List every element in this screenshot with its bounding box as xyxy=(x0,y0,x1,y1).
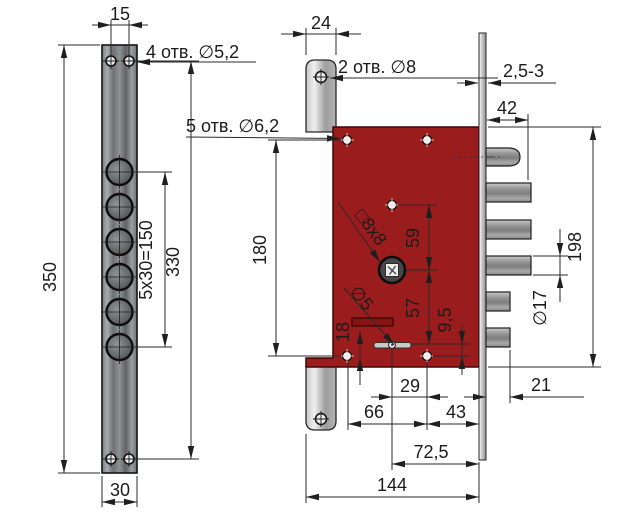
faceplate-strip-view xyxy=(102,45,137,473)
spindle-square-hole xyxy=(379,257,405,283)
dim-backset: 72,5 xyxy=(413,442,448,462)
dim-lever-to-hole: 9,5 xyxy=(435,307,455,332)
dim-hole-to-faceplate: 43 xyxy=(446,402,466,422)
dim-hole-to-spindle: 59 xyxy=(403,228,423,248)
dim-slot-offset: 18 xyxy=(333,322,353,342)
body-slot xyxy=(352,318,393,326)
label-4-holes: 4 отв. ∅5,2 xyxy=(146,42,239,62)
dim-body-hole-span: 180 xyxy=(250,235,270,265)
dim-strip-hole-span: 330 xyxy=(163,247,183,277)
dimensions-left-view xyxy=(58,20,256,507)
dim-bolt-throw: 42 xyxy=(497,98,517,118)
dim-lever-pivot-offset: 29 xyxy=(400,376,420,396)
deadbolts xyxy=(486,183,531,275)
dim-spindle-to-lever: 57 xyxy=(403,298,423,318)
label-plate-thickness: 2,5-3 xyxy=(503,61,544,81)
label-5-holes: 5 отв. ∅6,2 xyxy=(186,116,279,136)
drawing-canvas: 15 4 отв. ∅5,2 350 5x30=150 330 30 24 2 … xyxy=(0,0,635,517)
dim-body-depth: 144 xyxy=(377,475,407,495)
aux-bolts xyxy=(486,292,510,347)
label-2-holes: 2 отв. ∅8 xyxy=(338,57,416,77)
faceplate-edge xyxy=(479,33,486,460)
dim-big-hole-pattern: 5x30=150 xyxy=(136,220,156,300)
dim-strip-height: 350 xyxy=(40,262,60,292)
dim-strip-width: 30 xyxy=(110,480,130,500)
dim-post-width: 24 xyxy=(311,13,331,33)
lock-technical-drawing: 15 4 отв. ∅5,2 350 5x30=150 330 30 24 2 … xyxy=(0,0,635,517)
dim-body-height: 198 xyxy=(565,232,585,262)
dim-hole-span-horizontal: 66 xyxy=(364,402,384,422)
dim-aux-bolt-throw: 21 xyxy=(531,375,551,395)
label-bolt-dia: ∅17 xyxy=(530,290,550,326)
dim-strip-hole-spacing: 15 xyxy=(110,4,130,24)
